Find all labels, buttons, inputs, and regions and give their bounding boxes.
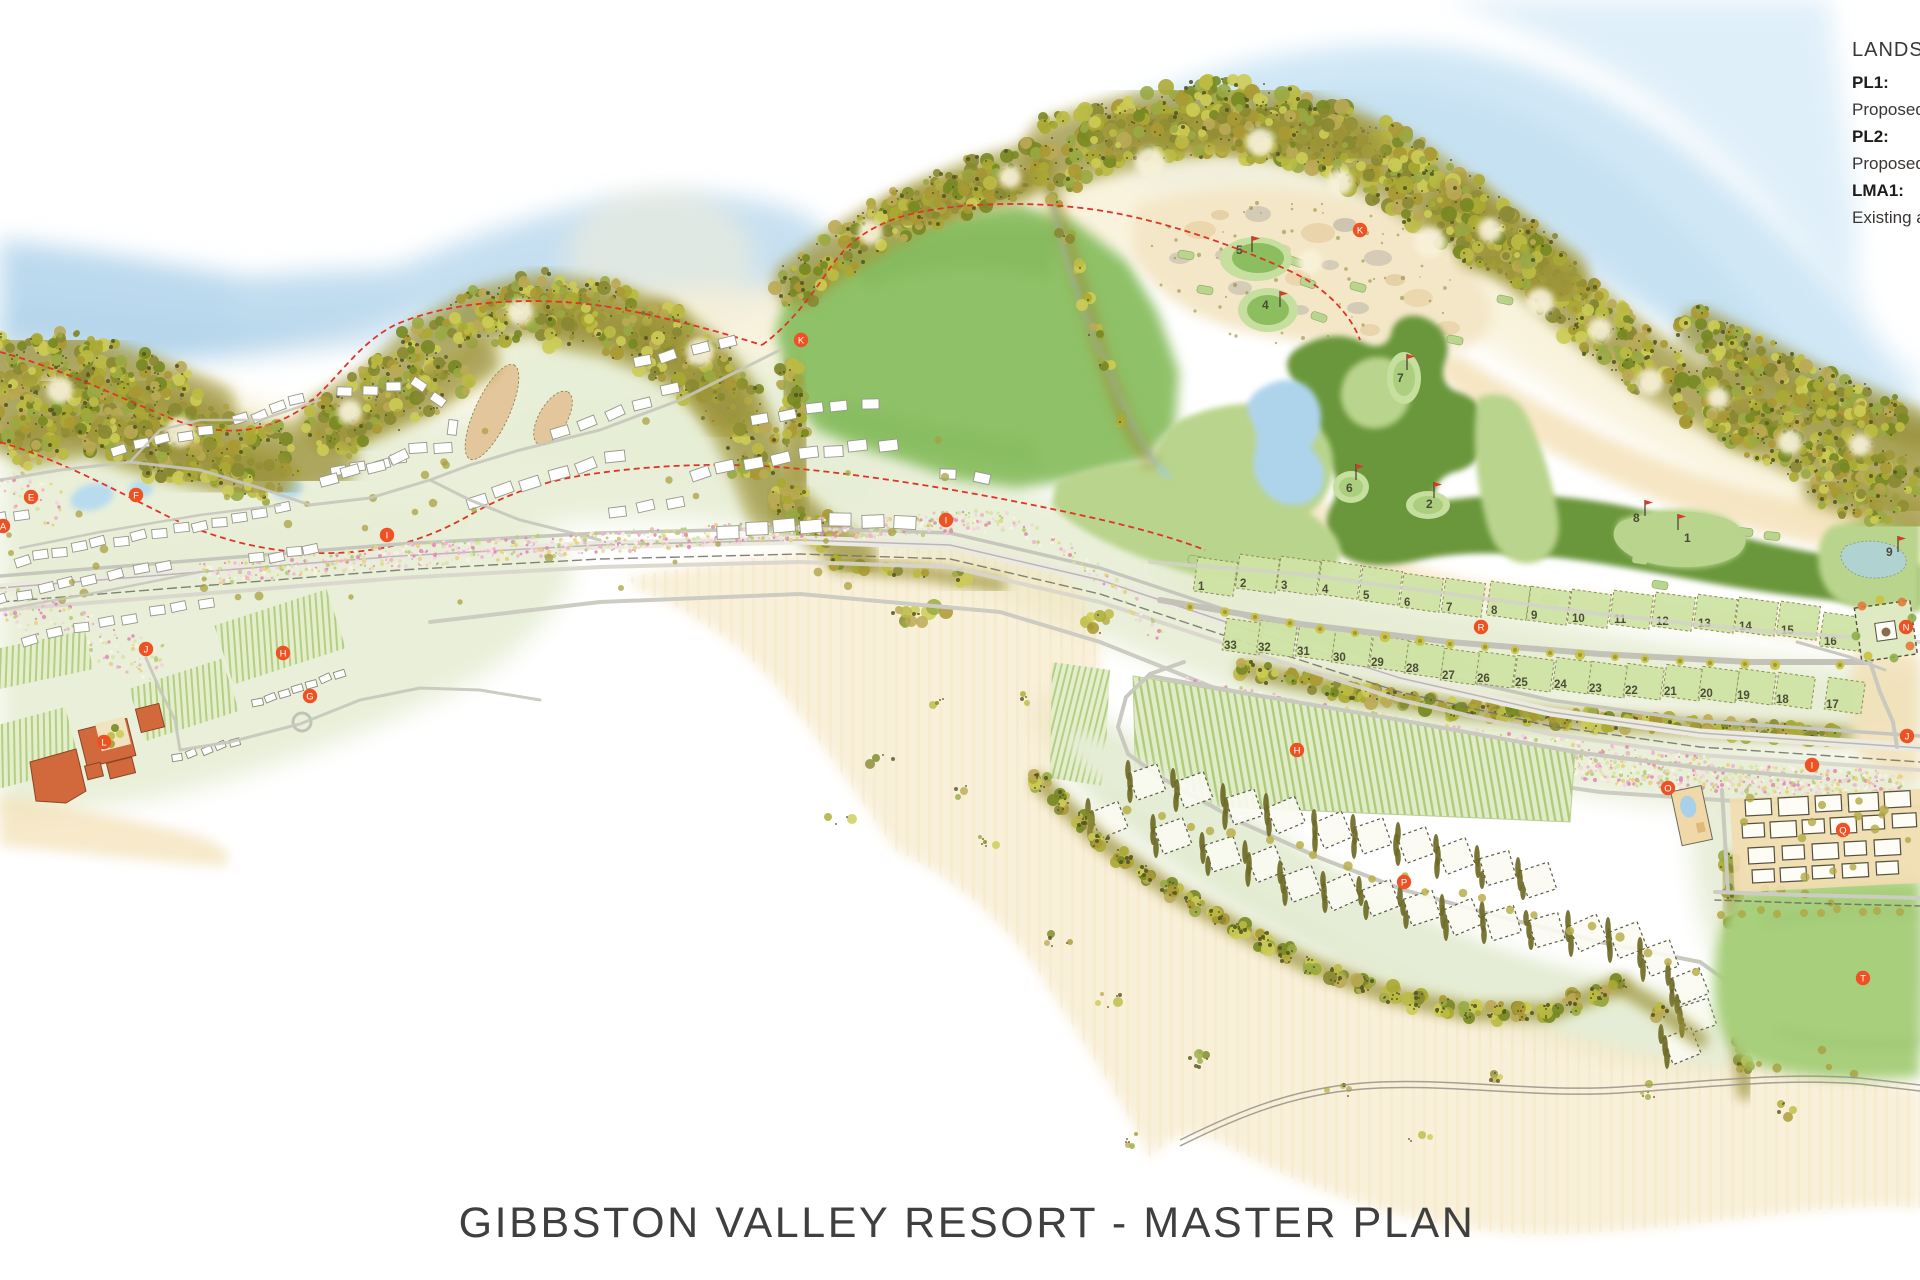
svg-text:2: 2 — [1426, 497, 1433, 511]
svg-text:4: 4 — [1262, 298, 1269, 312]
svg-text:6: 6 — [1346, 481, 1353, 495]
svg-text:7: 7 — [1397, 371, 1404, 385]
svg-text:9: 9 — [1886, 545, 1893, 559]
svg-text:8: 8 — [1633, 511, 1640, 525]
svg-text:1: 1 — [1684, 531, 1691, 545]
